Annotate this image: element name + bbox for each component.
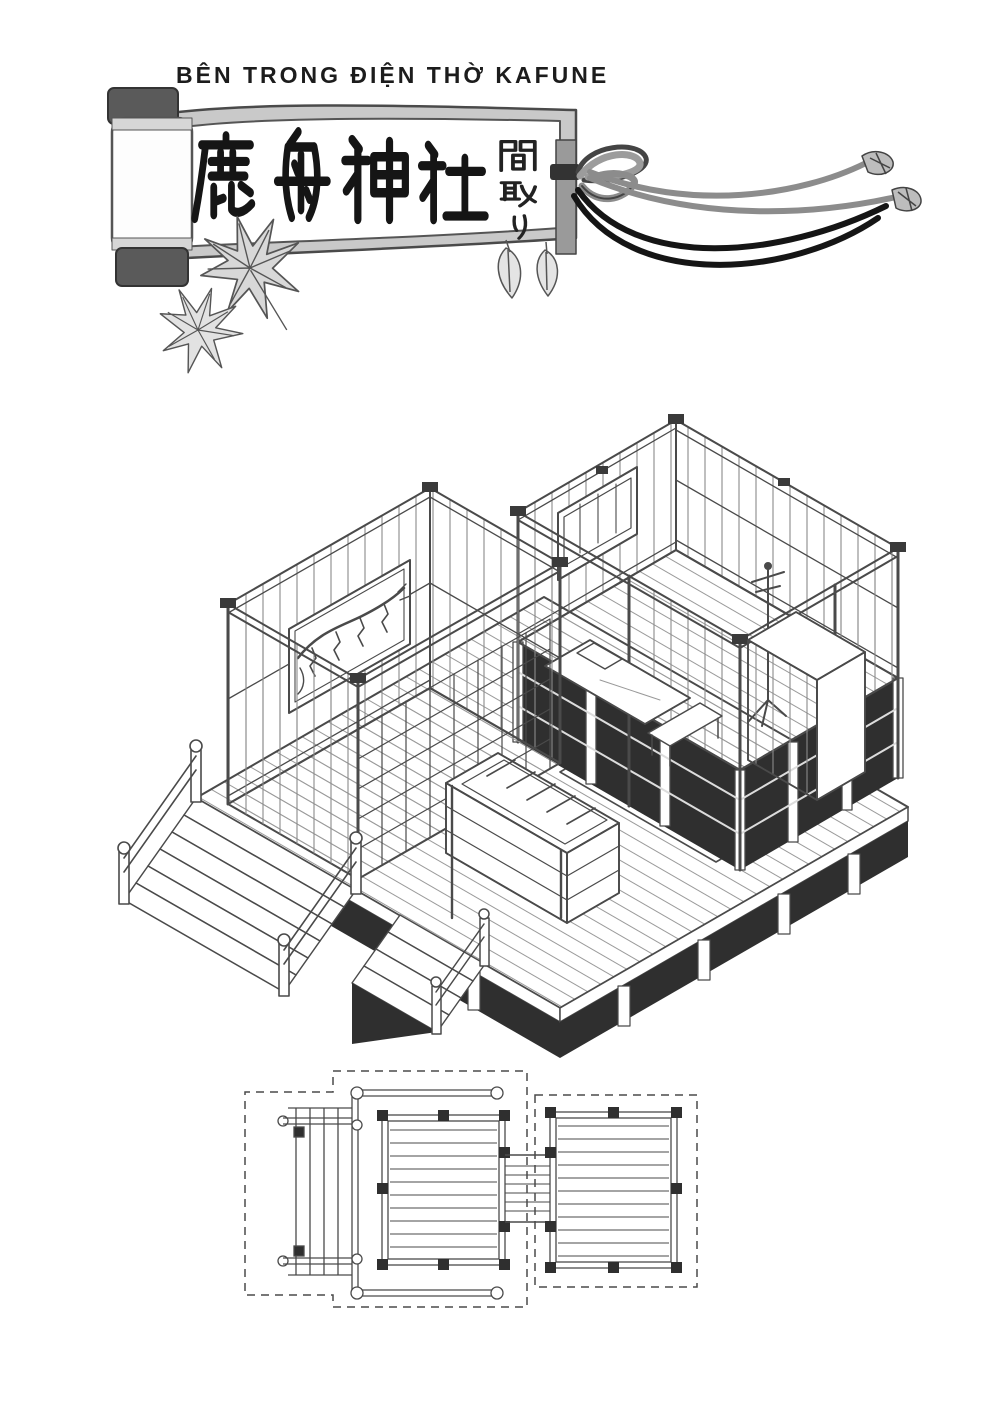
plan-left-room bbox=[377, 1110, 510, 1270]
scroll-roller bbox=[108, 88, 192, 286]
plan-posts bbox=[377, 1110, 510, 1270]
manga-page: 鹿舟神社 間取り bbox=[0, 0, 1000, 1422]
plan-stairs bbox=[278, 1108, 352, 1275]
hanging-leaves bbox=[498, 240, 557, 298]
hanging-cord bbox=[574, 147, 896, 265]
plan-floor-planks bbox=[558, 1126, 669, 1256]
roof-outline-dashed bbox=[245, 1071, 697, 1307]
plan-floor-planks bbox=[390, 1130, 497, 1247]
scroll-banner bbox=[108, 88, 921, 385]
plan-posts bbox=[545, 1107, 682, 1273]
page-artwork bbox=[0, 0, 1000, 1422]
shrine-isometric-drawing bbox=[118, 414, 908, 1058]
floor-plan-drawing bbox=[245, 1071, 697, 1307]
plan-deck bbox=[351, 1087, 503, 1299]
plan-right-room bbox=[545, 1107, 682, 1273]
page-title: BÊN TRONG ĐIỆN THỜ KAFUNE bbox=[176, 62, 609, 89]
